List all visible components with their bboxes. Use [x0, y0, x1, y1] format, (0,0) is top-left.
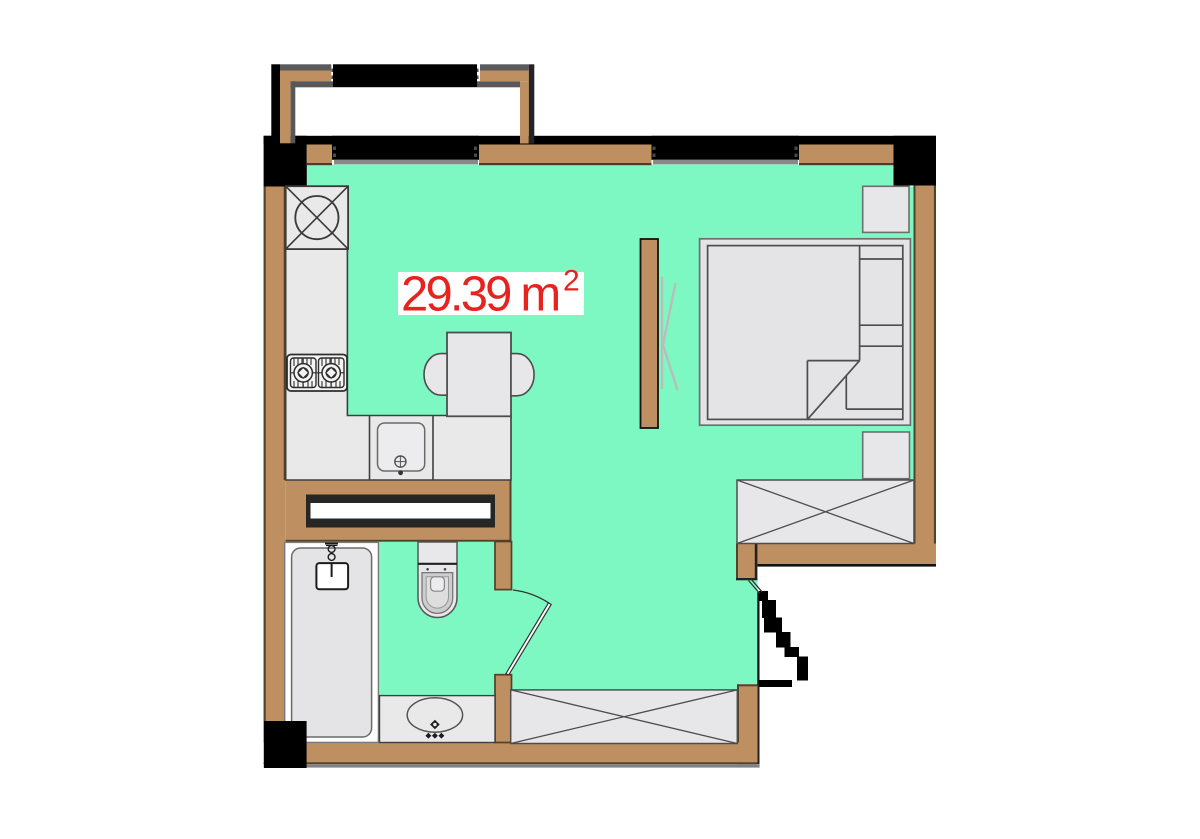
svg-text:2: 2 [563, 265, 580, 298]
svg-text:29.39 m: 29.39 m [401, 268, 558, 322]
